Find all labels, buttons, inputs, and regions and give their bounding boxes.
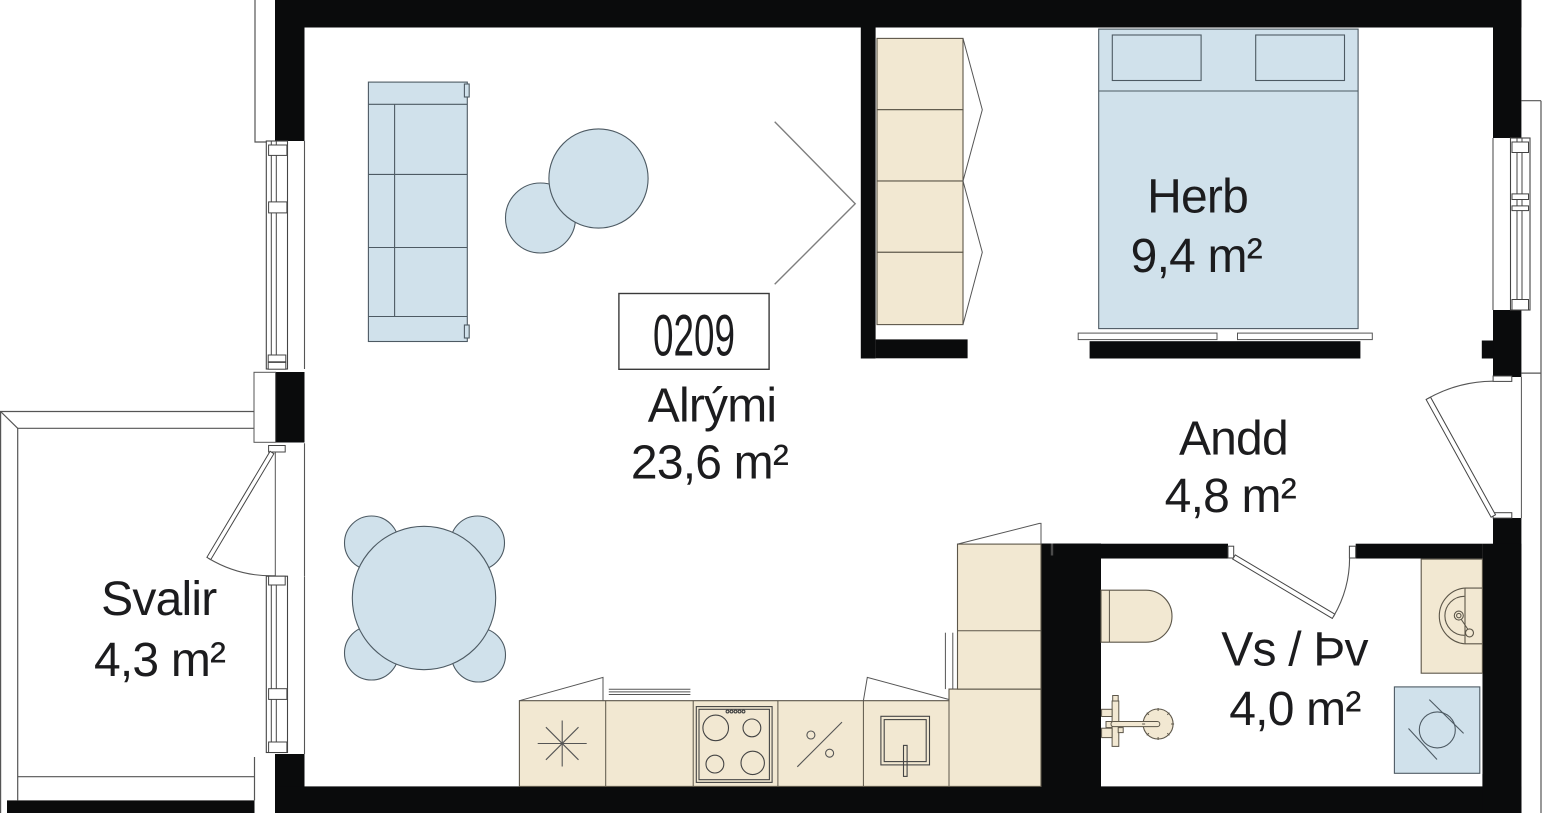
svg-text:4,8 m²: 4,8 m²	[1165, 470, 1297, 523]
svg-text:Svalir: Svalir	[101, 573, 217, 626]
svg-text:Herb: Herb	[1147, 171, 1248, 224]
svg-text:Andd: Andd	[1179, 412, 1288, 465]
svg-text:23,6 m²: 23,6 m²	[631, 436, 789, 489]
svg-text:Alrými: Alrými	[648, 379, 777, 432]
svg-text:0209: 0209	[653, 304, 735, 369]
svg-text:9,4 m²: 9,4 m²	[1131, 230, 1263, 283]
svg-text:4,3 m²: 4,3 m²	[94, 634, 226, 687]
svg-text:Vs / Þv: Vs / Þv	[1221, 624, 1368, 677]
svg-text:4,0 m²: 4,0 m²	[1229, 683, 1361, 736]
